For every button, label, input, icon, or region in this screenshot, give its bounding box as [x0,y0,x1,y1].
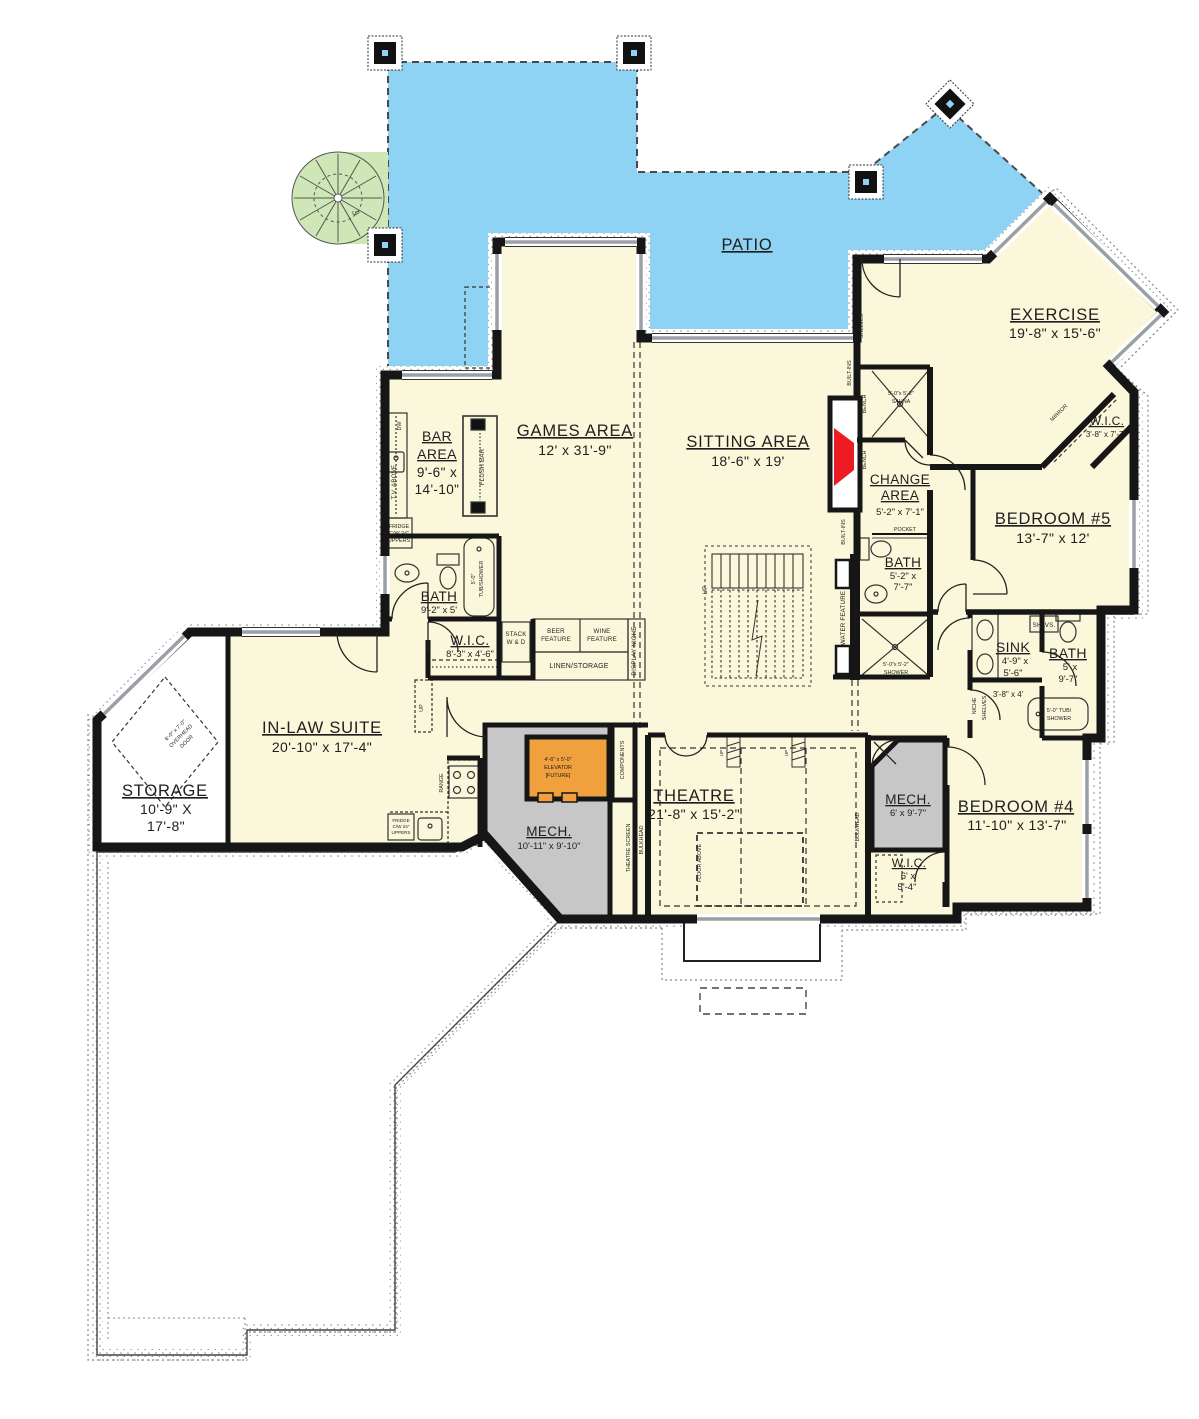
window-well [684,919,820,961]
label-exercise-dims: 19'-8" x 15'-6" [1009,325,1101,341]
label-tub-games-1: 5'-0" [471,574,477,585]
label-sink-d2: 5'-6" [1004,668,1023,679]
label-bedroom4-dims: 11'-10" x 13'-7" [967,817,1066,833]
label-flush-bar: FLUSH BAR [479,448,486,485]
label-shower-dims: 5'-0"x 5'-2" [883,662,909,668]
label-bench-2: BENCH [862,450,868,469]
label-storage: STORAGE [122,782,208,800]
label-bar-1: BAR [422,428,452,444]
label-bath-games: BATH [421,589,458,604]
label-bar-2: AREA [417,446,457,462]
label-builtins-2: BUILT-INS [841,519,847,545]
well-footing-dashed [700,988,806,1014]
label-up-riser-1: UP [719,750,724,756]
label-bath5: BATH [1049,645,1087,661]
label-wic5: W.I.C. [1090,414,1124,428]
label-change-1: CHANGE [870,472,930,487]
label-bulkhead-right: BULKHEAD [855,812,861,841]
label-wic-games-dims: 8'-3" x 4'-6" [446,649,494,660]
label-wine-1: WINE [594,628,611,635]
label-wic4-d1: 6' x [901,871,916,882]
label-theatre: THEATRE [653,787,734,805]
label-up-hall: UP [419,704,425,712]
label-sitting-area: SITTING AREA [686,433,809,451]
label-shower: SHOWER [884,670,908,676]
label-wic4-d2: 5'-4" [898,882,917,893]
label-display-niche: DISPLAY NICHE [631,626,638,675]
label-beer-2: FEATURE [541,636,571,643]
label-elev-3: [FUTURE] [546,773,571,779]
label-patio: PATIO [721,236,772,254]
fireplace [830,398,860,510]
label-shelves-change: SHELVES [858,487,864,512]
label-tub45-2: SHOWER [1047,716,1071,722]
label-sauna-dims: 5'-0"x 5'-2" [888,391,914,397]
label-niche: NICHE [972,697,978,714]
label-closet-dims: 3'-8" x 4' [993,690,1024,699]
label-range: RANGE [439,773,445,793]
label-mech1-dims: 10'-11" x 9'-10" [517,841,580,852]
label-bulkhead-left: BULKHEAD [639,825,645,854]
label-bath-games-dims: 9'-2" x 5' [421,605,457,616]
label-beer-1: BEER [547,628,565,635]
label-up-riser-2: UP [784,750,789,756]
label-stack-2: W & D [507,639,526,646]
label-wic4: W.I.C. [892,856,926,870]
label-storage-d1: 10'-9" X [140,801,192,817]
label-bath5-d2: 9'-7" [1059,674,1078,685]
label-bar-3: 9'-6" x [417,465,457,480]
label-change-dims: 5'-2" x 7'-1" [876,507,924,518]
label-dw: DW [397,421,403,431]
label-tub-games-2: TUB/SHOWER [479,561,485,598]
label-stack-1: STACK [505,631,527,638]
label-elev-1: 4'-6" x 5'-0" [544,757,571,763]
label-fridge-g-3: UPPERS [388,538,411,544]
label-theatre-dims: 21'-8" x 15'-2" [648,806,740,822]
label-bar-4: 14'-10" [415,482,460,497]
label-builtins-1: BUILT-INS [847,360,853,386]
label-fridge-i-3: UPPERS [392,830,411,835]
label-tv-above: T.V. ABOVE [391,465,398,500]
label-bench-1: BENCH [862,394,868,413]
label-bath-change-d2: 7'-7" [894,582,913,593]
label-tub45-1: 5'-0" TUB/ [1047,708,1072,714]
label-mech2: MECH. [885,792,931,807]
label-fridge-i-2: C/W 24" [393,824,410,829]
label-theatre-screen: THEATRE SCREEN [626,824,632,873]
label-bedroom5-dims: 13'-7" x 12' [1016,530,1090,546]
label-exercise: EXERCISE [1010,306,1100,324]
label-pocket: POCKET [894,527,917,533]
floor-plan-drawing: PATIO EXERCISE 19'-8" x 15'-6" GAMES ARE… [0,0,1199,1419]
label-water-feature: WATER FEATURE [840,591,847,645]
label-fridge-g-1: FRIDGE [389,524,410,530]
label-up-spiral: UP [352,211,360,217]
label-bath-change: BATH [885,555,922,570]
label-storage-d2: 17'-8" [147,818,185,834]
label-games-area: GAMES AREA [517,422,633,440]
label-change-2: AREA [881,488,919,503]
label-bedroom4: BEDROOM #4 [958,798,1074,816]
label-linen: LINEN/STORAGE [549,663,608,670]
label-fridge-g-2: C/W 24" [389,531,409,537]
label-elev-2: ELEVATOR [544,765,572,771]
label-wic-games: W.I.C. [450,633,489,648]
label-sink-d1: 4'-9" x [1002,656,1029,667]
label-fridge-i-1: FRIDGE [392,818,409,823]
label-sauna: SAUNA [892,399,911,405]
label-mech1: MECH. [526,824,572,839]
label-components: COMPONENTS [620,740,626,779]
label-wic5-dims: 3'-8" x 7'-7" [1086,430,1126,439]
label-up-stairs: UP [702,586,709,595]
label-bath5-d1: 5' x [1063,662,1078,673]
label-sitting-dims: 18'-6" x 19' [711,453,785,469]
label-games-dims: 12' x 31'-9" [538,442,612,458]
label-sink: SINK [996,639,1031,655]
label-mech2-dims: 6' x 9'-7" [890,808,926,819]
label-floor-above: FLOOR ABOVE [697,843,703,882]
label-bath-change-d1: 5'-2" x [890,571,917,582]
label-inlaw-dims: 20'-10" x 17'-4" [272,739,372,755]
label-wine-2: FEATURE [587,636,617,643]
label-shlvs: SHLVS. [1033,622,1056,629]
label-shelves-exercise: SHELVES [859,313,865,338]
label-inlaw: IN-LAW SUITE [262,719,382,737]
floor-plan-page: PATIO EXERCISE 19'-8" x 15'-6" GAMES ARE… [0,0,1199,1419]
label-bedroom5: BEDROOM #5 [995,510,1111,528]
label-shelves-sink: SHELVES [982,695,988,720]
